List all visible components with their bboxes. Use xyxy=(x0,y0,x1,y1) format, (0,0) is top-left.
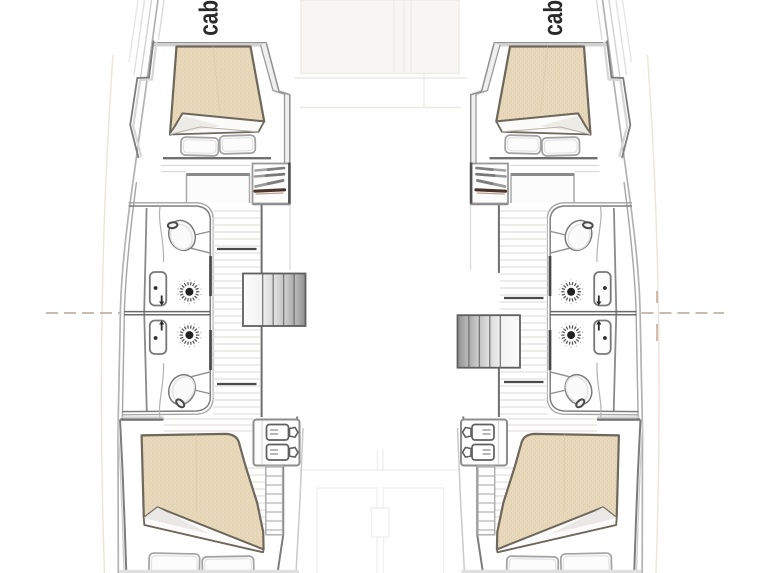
svg-text:cabin: cabin xyxy=(194,0,223,36)
svg-text:cabin: cabin xyxy=(539,0,568,36)
